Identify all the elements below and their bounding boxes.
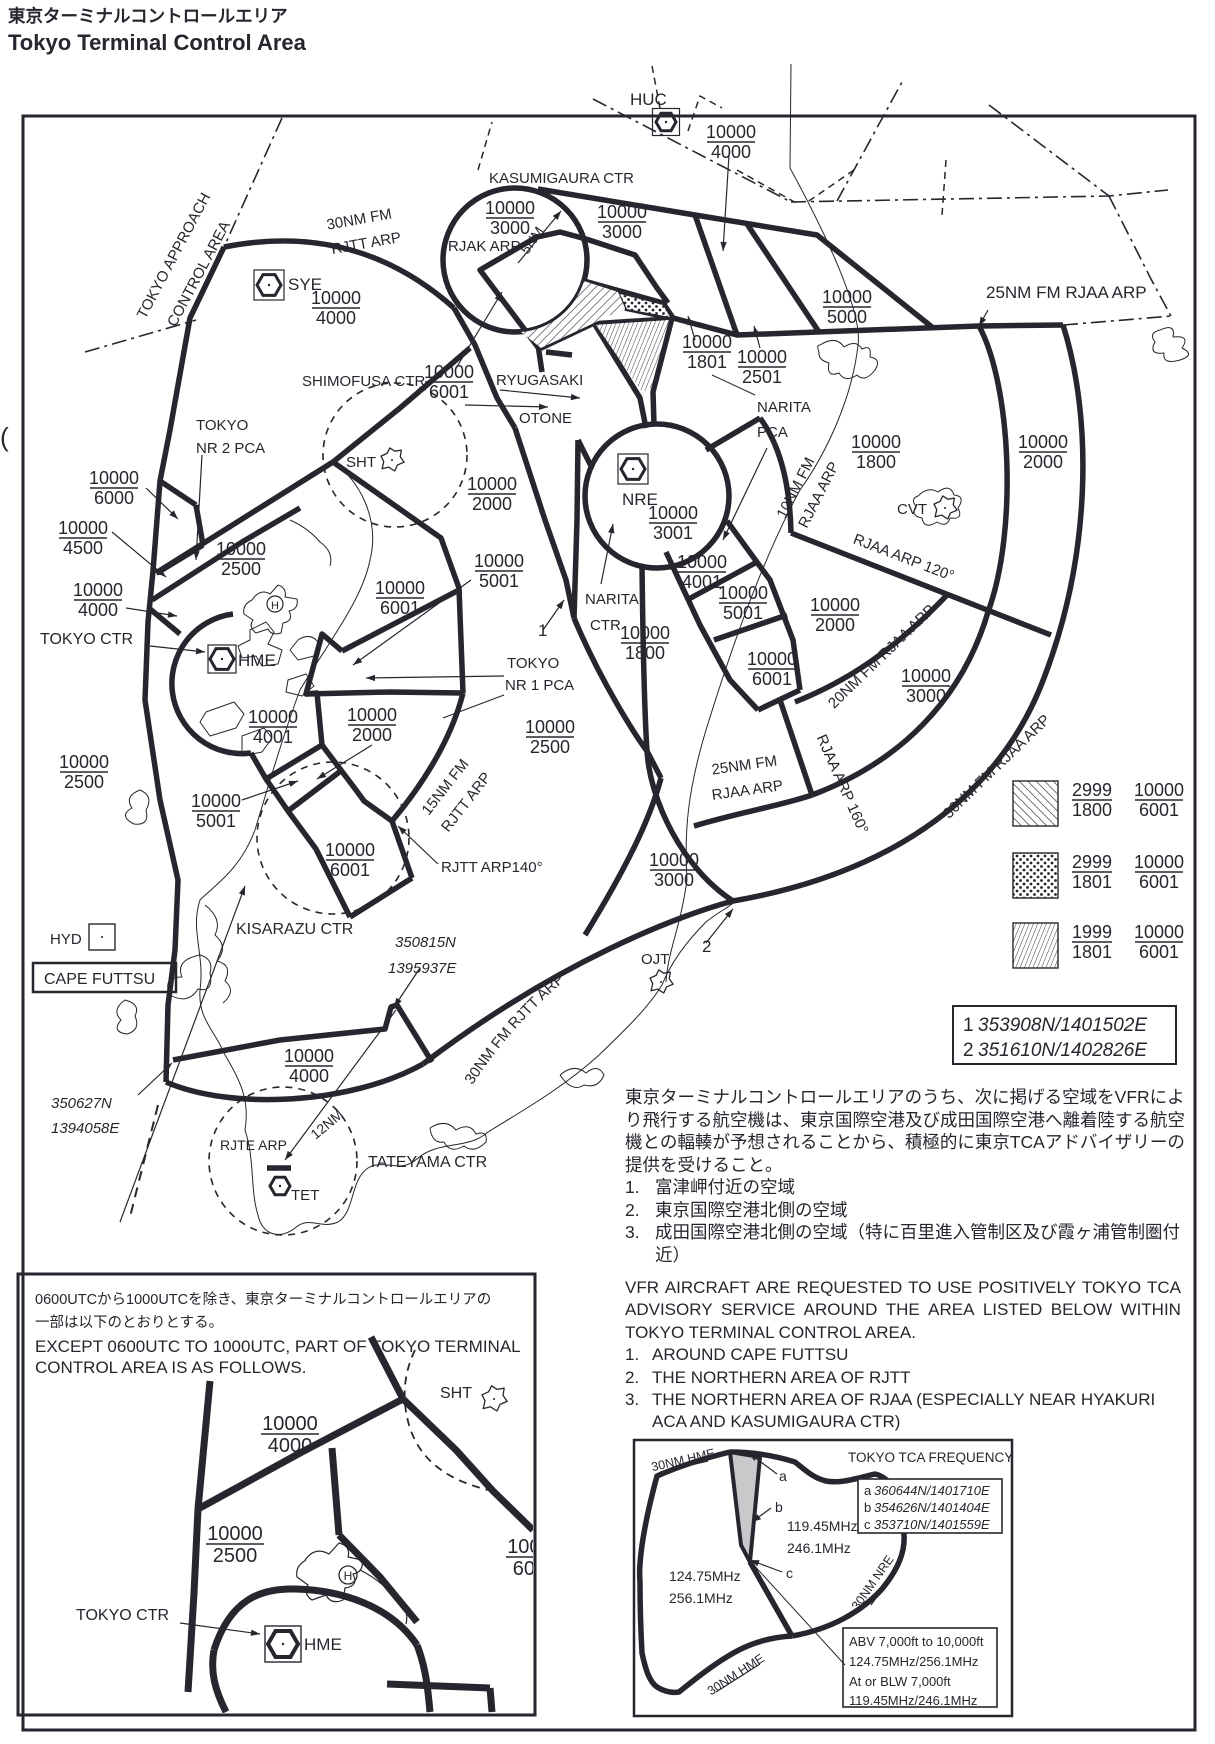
svg-text:4500: 4500 bbox=[63, 538, 103, 558]
svg-text:10000: 10000 bbox=[1018, 432, 1068, 452]
svg-text:SHIMOFUSA CTR: SHIMOFUSA CTR bbox=[302, 373, 426, 390]
svg-text:10000: 10000 bbox=[649, 850, 699, 870]
svg-text:10000: 10000 bbox=[1134, 852, 1184, 872]
svg-text:5001: 5001 bbox=[479, 571, 519, 591]
svg-text:10000: 10000 bbox=[262, 1413, 318, 1435]
svg-text:1: 1 bbox=[963, 1015, 974, 1036]
svg-text:10000: 10000 bbox=[58, 518, 108, 538]
svg-text:10000: 10000 bbox=[525, 717, 575, 737]
svg-text:6001: 6001 bbox=[330, 860, 370, 880]
svg-text:119.45MHz/246.1MHz: 119.45MHz/246.1MHz bbox=[849, 1693, 977, 1708]
svg-text:10000: 10000 bbox=[325, 840, 375, 860]
svg-text:HME: HME bbox=[304, 1635, 342, 1654]
svg-text:PCA: PCA bbox=[757, 424, 788, 441]
svg-text:30NM FM: 30NM FM bbox=[325, 205, 393, 233]
svg-text:2500: 2500 bbox=[64, 772, 104, 792]
svg-text:RJAA ARP 160°: RJAA ARP 160° bbox=[813, 732, 872, 836]
svg-text:10000: 10000 bbox=[1134, 780, 1184, 800]
svg-text:c: c bbox=[864, 1517, 871, 1532]
svg-text:Tokyo Terminal Control Area: Tokyo Terminal Control Area bbox=[8, 30, 307, 55]
svg-text:30NM HME: 30NM HME bbox=[650, 1446, 716, 1474]
svg-text:1801: 1801 bbox=[687, 352, 727, 372]
svg-text:246.1MHz: 246.1MHz bbox=[787, 1540, 851, 1556]
svg-text:東京ターミナルコントロールエリア: 東京ターミナルコントロールエリア bbox=[8, 6, 288, 26]
svg-text:1395937E: 1395937E bbox=[388, 960, 457, 977]
svg-text:NR 1 PCA: NR 1 PCA bbox=[505, 677, 574, 694]
svg-text:2500: 2500 bbox=[221, 559, 261, 579]
svg-text:TOKYO CTR: TOKYO CTR bbox=[40, 631, 133, 648]
svg-text:HUC: HUC bbox=[630, 90, 667, 109]
svg-text:RJAK ARP: RJAK ARP bbox=[448, 238, 521, 255]
svg-text:10000: 10000 bbox=[747, 649, 797, 669]
svg-text:4000: 4000 bbox=[316, 308, 356, 328]
svg-text:CTR: CTR bbox=[590, 617, 621, 634]
svg-text:CAPE FUTTSU: CAPE FUTTSU bbox=[44, 971, 155, 988]
svg-text:25NM FM RJAA ARP: 25NM FM RJAA ARP bbox=[986, 283, 1147, 302]
svg-text:30NM FM RJTT ARP: 30NM FM RJTT ARP bbox=[461, 970, 567, 1087]
svg-text:6001: 6001 bbox=[752, 669, 792, 689]
svg-text:10000: 10000 bbox=[191, 791, 241, 811]
svg-text:5000: 5000 bbox=[827, 307, 867, 327]
svg-text:10000: 10000 bbox=[648, 503, 698, 523]
svg-text:2000: 2000 bbox=[815, 615, 855, 635]
svg-text:4001: 4001 bbox=[253, 727, 293, 747]
svg-text:3001: 3001 bbox=[653, 523, 693, 543]
svg-text:ABV 7,000ft to 10,000ft: ABV 7,000ft to 10,000ft bbox=[849, 1634, 984, 1649]
svg-text:1800: 1800 bbox=[1072, 800, 1112, 820]
svg-text:6000: 6000 bbox=[94, 488, 134, 508]
svg-text:2000: 2000 bbox=[472, 494, 512, 514]
svg-text:KASUMIGAURA CTR: KASUMIGAURA CTR bbox=[489, 170, 634, 187]
svg-text:KISARAZU CTR: KISARAZU CTR bbox=[236, 921, 353, 938]
svg-text:SHT: SHT bbox=[440, 1385, 472, 1402]
svg-text:10000: 10000 bbox=[706, 122, 756, 142]
svg-text:H: H bbox=[344, 1569, 353, 1583]
svg-text:10000: 10000 bbox=[485, 198, 535, 218]
svg-text:10000: 10000 bbox=[851, 432, 901, 452]
svg-text:1801: 1801 bbox=[1072, 942, 1112, 962]
svg-text:NARITA: NARITA bbox=[585, 591, 639, 608]
svg-text:TOKYO: TOKYO bbox=[507, 655, 559, 672]
svg-text:1800: 1800 bbox=[625, 643, 665, 663]
svg-text:10000: 10000 bbox=[311, 288, 361, 308]
svg-text:2: 2 bbox=[702, 937, 711, 956]
svg-text:4000: 4000 bbox=[711, 142, 751, 162]
svg-text:EXCEPT 0600UTC TO 1000UTC, PAR: EXCEPT 0600UTC TO 1000UTC, PART OF TOKYO… bbox=[35, 1337, 521, 1356]
svg-text:HME: HME bbox=[238, 651, 276, 670]
svg-text:b: b bbox=[775, 1499, 783, 1515]
svg-text:10000: 10000 bbox=[73, 580, 123, 600]
svg-text:2500: 2500 bbox=[530, 737, 570, 757]
svg-text:10000: 10000 bbox=[597, 202, 647, 222]
svg-text:6001: 6001 bbox=[380, 598, 420, 618]
svg-text:6001: 6001 bbox=[1139, 800, 1179, 820]
svg-text:SHT: SHT bbox=[346, 454, 376, 471]
svg-text:1801: 1801 bbox=[1072, 872, 1112, 892]
svg-text:10000: 10000 bbox=[718, 583, 768, 603]
svg-text:a: a bbox=[864, 1483, 872, 1498]
svg-text:0600UTCから1000UTCを除き、東京ターミナルコント: 0600UTCから1000UTCを除き、東京ターミナルコントロールエリアの bbox=[35, 1291, 491, 1308]
svg-text:2501: 2501 bbox=[742, 367, 782, 387]
svg-text:RJAA ARP: RJAA ARP bbox=[711, 777, 784, 804]
svg-text:1800: 1800 bbox=[856, 452, 896, 472]
svg-text:HYD: HYD bbox=[50, 931, 82, 948]
svg-text:10000: 10000 bbox=[682, 332, 732, 352]
svg-text:10000: 10000 bbox=[822, 287, 872, 307]
svg-text:10000: 10000 bbox=[89, 468, 139, 488]
svg-text:TOKYO CTR: TOKYO CTR bbox=[76, 1607, 169, 1624]
svg-text:1: 1 bbox=[538, 621, 547, 640]
svg-text:NR 2 PCA: NR 2 PCA bbox=[196, 440, 265, 457]
svg-text:RYUGASAKI: RYUGASAKI bbox=[496, 372, 583, 389]
svg-text:10000: 10000 bbox=[677, 552, 727, 572]
svg-text:6001: 6001 bbox=[1139, 872, 1179, 892]
svg-text:CONTROL AREA IS AS FOLLOWS.: CONTROL AREA IS AS FOLLOWS. bbox=[35, 1358, 306, 1377]
svg-text:30NM HME: 30NM HME bbox=[705, 1651, 767, 1698]
svg-text:351610N/1402826E: 351610N/1402826E bbox=[978, 1040, 1147, 1061]
svg-text:10000: 10000 bbox=[474, 551, 524, 571]
svg-text:TOKYO TCA FREQUENCY: TOKYO TCA FREQUENCY bbox=[848, 1450, 1013, 1465]
svg-text:10000: 10000 bbox=[467, 474, 517, 494]
svg-text:1999: 1999 bbox=[1072, 922, 1112, 942]
svg-text:256.1MHz: 256.1MHz bbox=[669, 1590, 733, 1606]
svg-text:10000: 10000 bbox=[810, 595, 860, 615]
svg-text:OJT: OJT bbox=[641, 951, 669, 968]
svg-text:2999: 2999 bbox=[1072, 852, 1112, 872]
svg-text:2000: 2000 bbox=[1023, 452, 1063, 472]
svg-text:10000: 10000 bbox=[59, 752, 109, 772]
svg-text:360644N/1401710E: 360644N/1401710E bbox=[874, 1483, 990, 1498]
svg-text:NARITA: NARITA bbox=[757, 399, 811, 416]
svg-text:2999: 2999 bbox=[1072, 780, 1112, 800]
svg-text:RJTT ARP140°: RJTT ARP140° bbox=[441, 859, 543, 876]
svg-text:10000: 10000 bbox=[901, 666, 951, 686]
svg-text:OTONE: OTONE bbox=[519, 410, 572, 427]
svg-text:10000: 10000 bbox=[737, 347, 787, 367]
svg-text:3000: 3000 bbox=[654, 870, 694, 890]
svg-text:2500: 2500 bbox=[213, 1545, 258, 1567]
svg-text:c: c bbox=[786, 1565, 793, 1581]
svg-text:3000: 3000 bbox=[906, 686, 946, 706]
svg-text:4000: 4000 bbox=[268, 1435, 313, 1457]
svg-text:10000: 10000 bbox=[216, 539, 266, 559]
svg-text:124.75MHz/256.1MHz: 124.75MHz/256.1MHz bbox=[849, 1654, 978, 1669]
svg-text:2000: 2000 bbox=[352, 725, 392, 745]
svg-text:10000: 10000 bbox=[1134, 922, 1184, 942]
svg-text:25NM FM: 25NM FM bbox=[711, 753, 779, 779]
svg-text:10000: 10000 bbox=[284, 1046, 334, 1066]
svg-text:10000: 10000 bbox=[248, 707, 298, 727]
svg-text:5001: 5001 bbox=[723, 603, 763, 623]
svg-text:353710N/1401559E: 353710N/1401559E bbox=[874, 1517, 990, 1532]
svg-text:350627N: 350627N bbox=[51, 1095, 112, 1112]
svg-text:TATEYAMA CTR: TATEYAMA CTR bbox=[368, 1154, 487, 1171]
svg-text:At or BLW 7,000ft: At or BLW 7,000ft bbox=[849, 1674, 951, 1689]
svg-text:4000: 4000 bbox=[78, 600, 118, 620]
svg-text:5001: 5001 bbox=[196, 811, 236, 831]
svg-text:(: ( bbox=[0, 422, 9, 452]
svg-text:a: a bbox=[779, 1468, 787, 1484]
svg-text:12NM: 12NM bbox=[307, 1106, 346, 1142]
svg-text:1394058E: 1394058E bbox=[51, 1120, 120, 1137]
svg-text:119.45MHz: 119.45MHz bbox=[787, 1518, 858, 1534]
svg-text:4001: 4001 bbox=[682, 572, 722, 592]
svg-text:CVT: CVT bbox=[897, 501, 927, 518]
svg-text:353908N/1401502E: 353908N/1401502E bbox=[978, 1015, 1147, 1036]
svg-text:124.75MHz: 124.75MHz bbox=[669, 1568, 741, 1584]
svg-text:3000: 3000 bbox=[602, 222, 642, 242]
svg-text:6001: 6001 bbox=[429, 382, 469, 402]
svg-text:4000: 4000 bbox=[289, 1066, 329, 1086]
svg-text:10000: 10000 bbox=[620, 623, 670, 643]
svg-text:3000: 3000 bbox=[490, 218, 530, 238]
svg-text:10000: 10000 bbox=[207, 1523, 263, 1545]
svg-text:H: H bbox=[271, 600, 279, 612]
svg-text:TOKYO: TOKYO bbox=[196, 417, 248, 434]
svg-text:10000: 10000 bbox=[424, 362, 474, 382]
svg-text:b: b bbox=[864, 1500, 871, 1515]
svg-text:10000: 10000 bbox=[347, 705, 397, 725]
svg-text:2: 2 bbox=[963, 1040, 974, 1061]
svg-text:354626N/1401404E: 354626N/1401404E bbox=[874, 1500, 990, 1515]
svg-text:6001: 6001 bbox=[1139, 942, 1179, 962]
svg-text:RJTE ARP: RJTE ARP bbox=[220, 1137, 287, 1153]
svg-text:TET: TET bbox=[291, 1187, 319, 1204]
svg-text:10000: 10000 bbox=[375, 578, 425, 598]
svg-text:350815N: 350815N bbox=[395, 934, 456, 951]
svg-text:一部は以下のとおりとする。: 一部は以下のとおりとする。 bbox=[35, 1314, 223, 1331]
